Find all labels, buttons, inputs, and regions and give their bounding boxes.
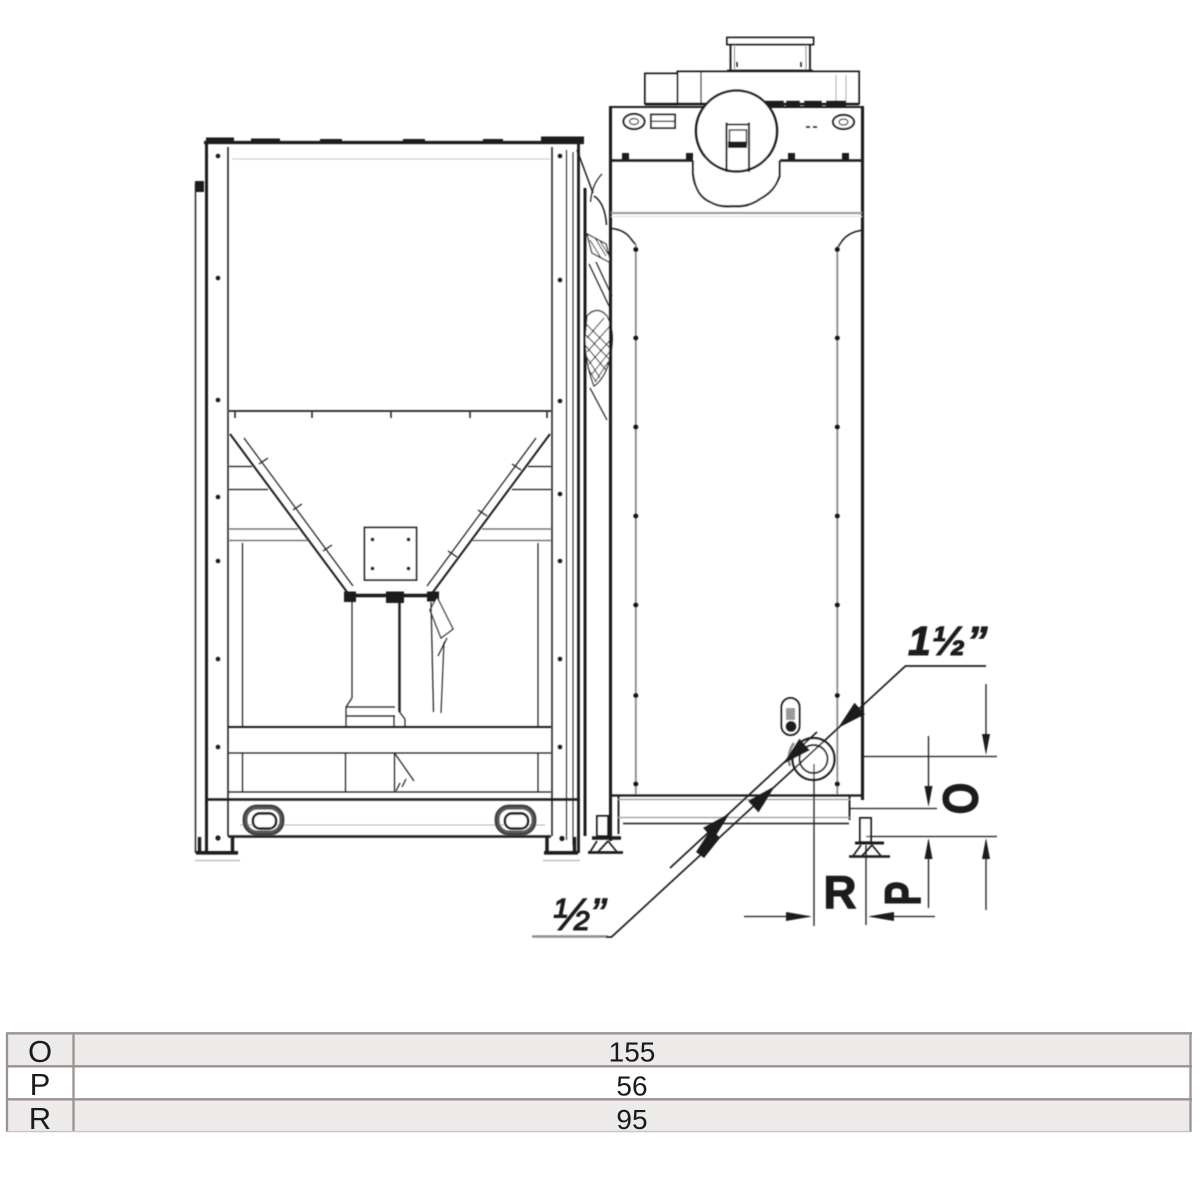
svg-text:R: R <box>823 866 856 918</box>
svg-text:155: 155 <box>609 1037 656 1068</box>
svg-text:95: 95 <box>616 1104 647 1135</box>
svg-text:P: P <box>875 881 932 905</box>
svg-text:O: O <box>933 783 989 815</box>
svg-text:½”: ½” <box>553 889 608 940</box>
svg-text:R: R <box>29 1101 51 1136</box>
svg-text:O: O <box>28 1034 52 1069</box>
svg-text:56: 56 <box>616 1071 647 1102</box>
svg-text:1½”: 1½” <box>908 618 989 664</box>
svg-text:P: P <box>30 1067 51 1102</box>
